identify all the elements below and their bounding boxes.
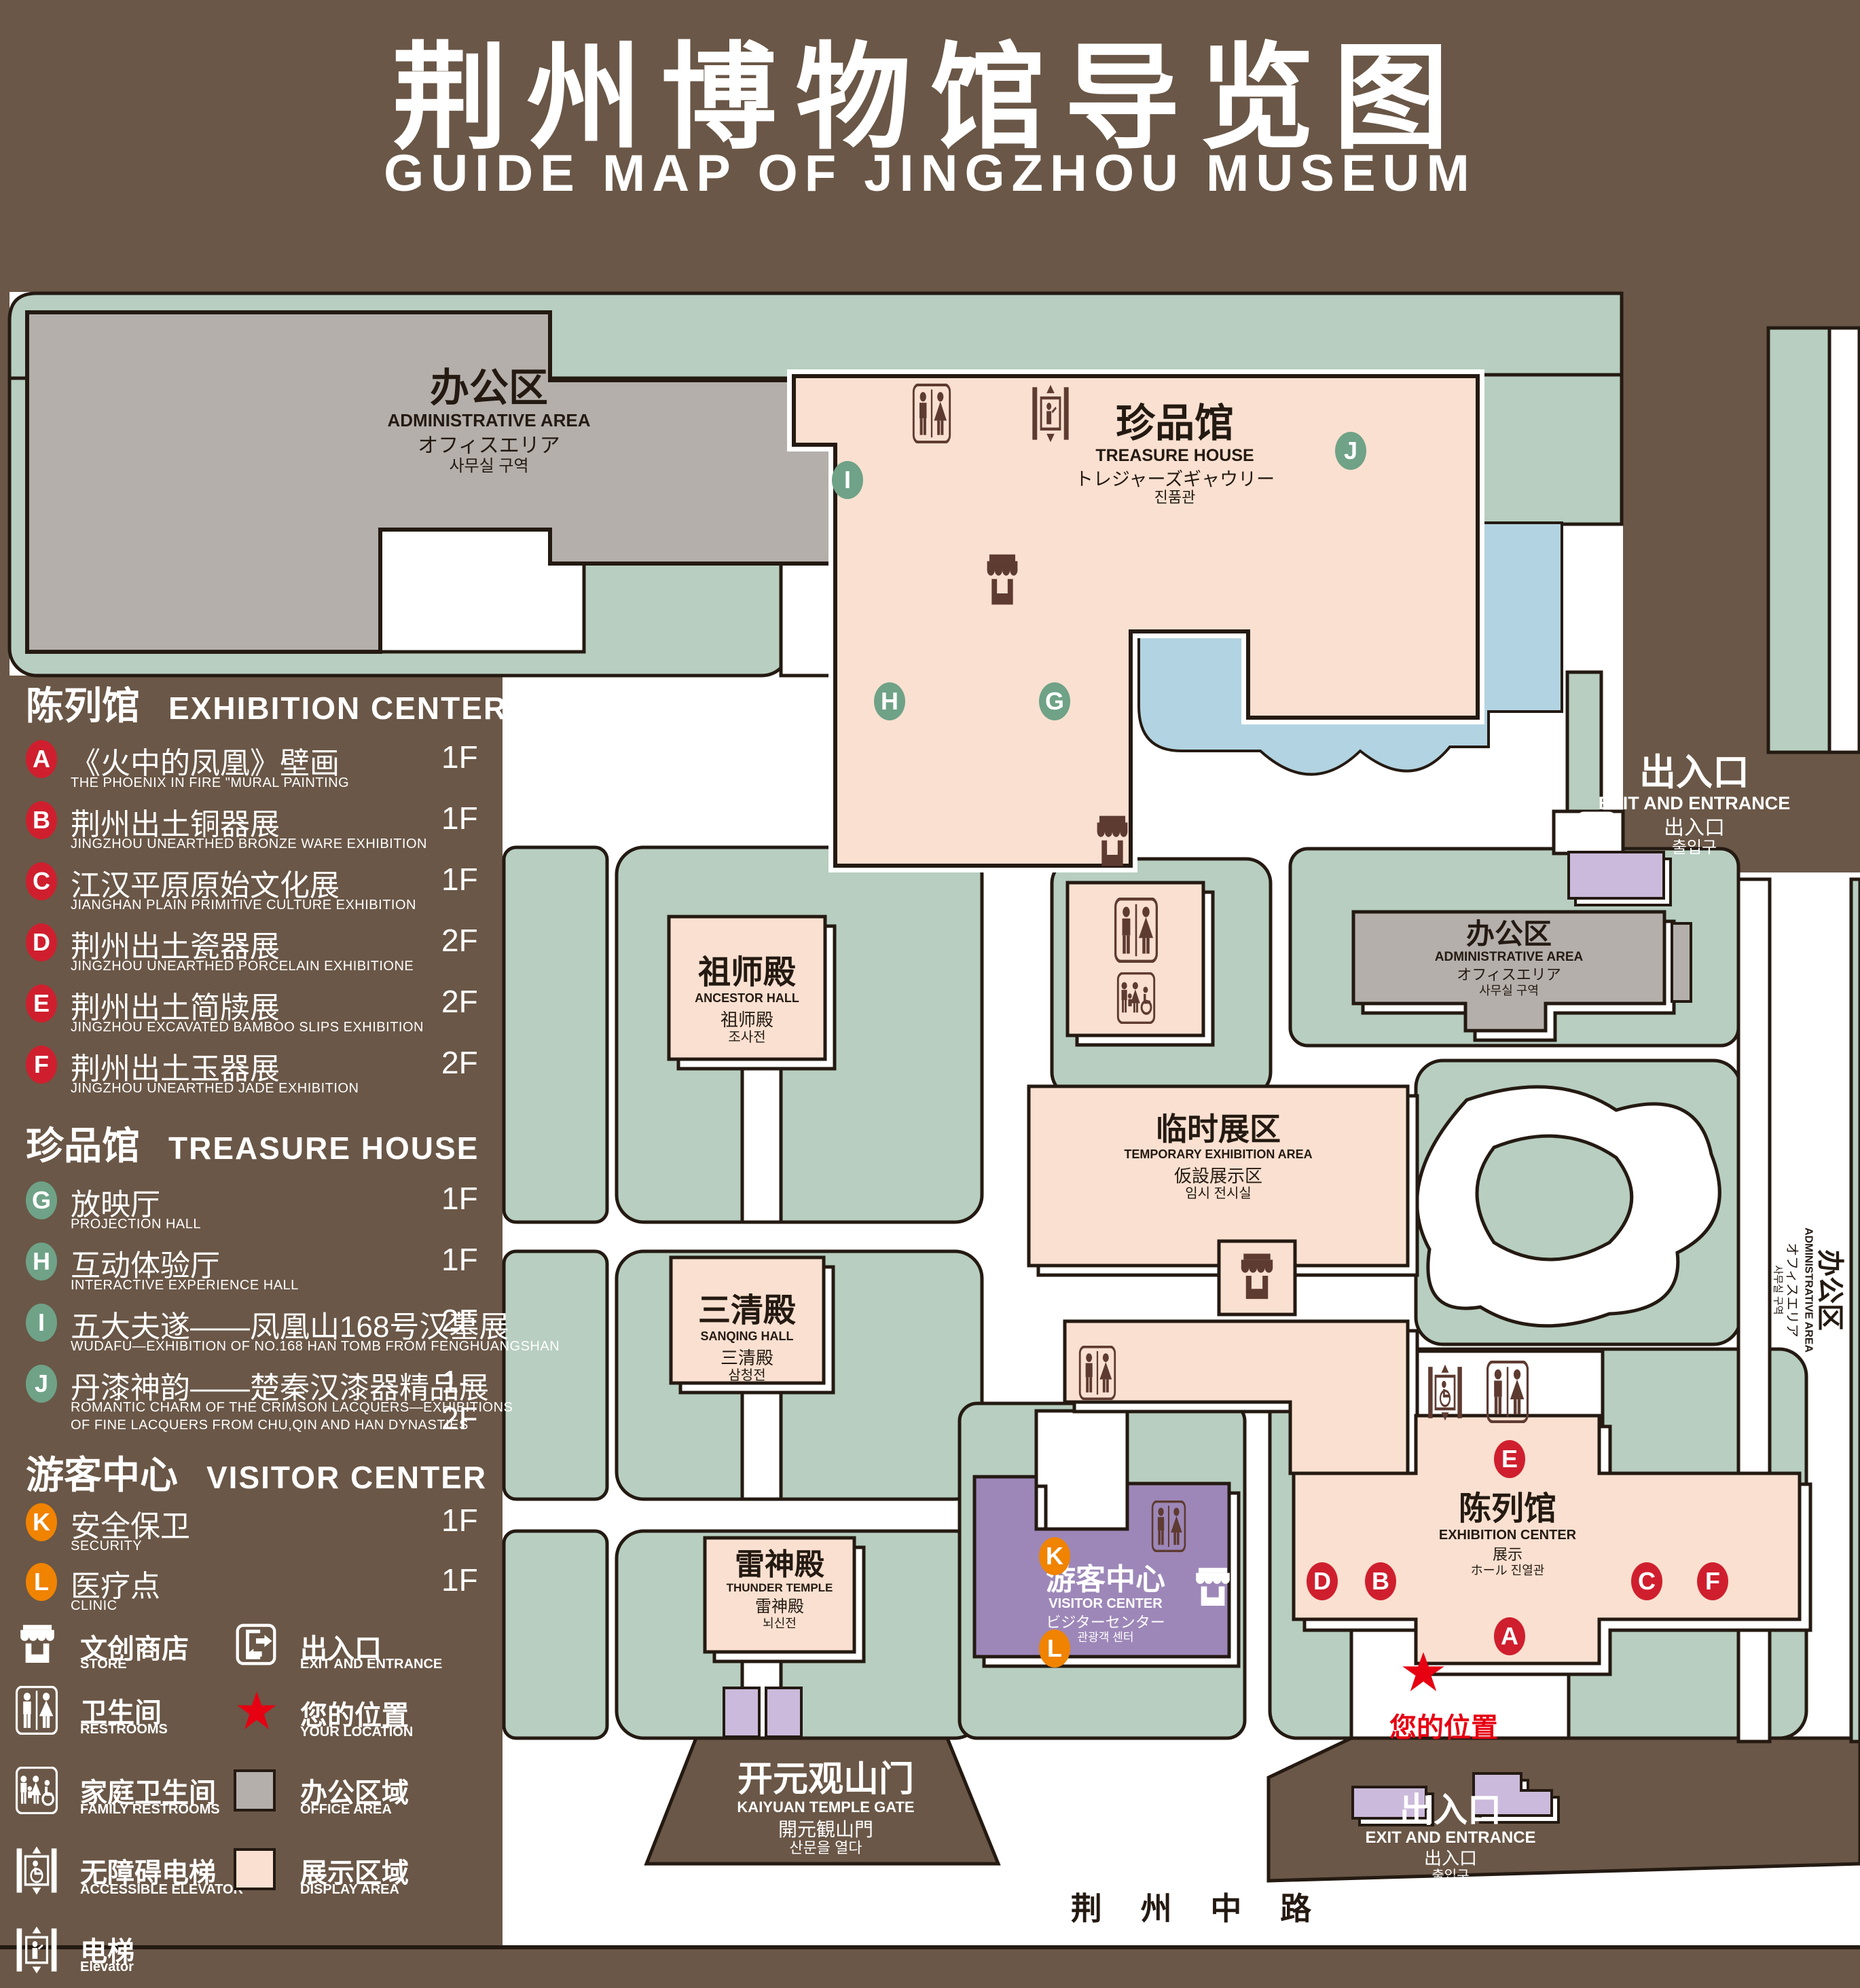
label-exhibition-center: 陈列馆 EXHIBITION CENTER 展示 ホール 진열관 — [1439, 1491, 1576, 1577]
badge-e: E — [26, 984, 57, 1023]
office-area-swatch — [234, 1769, 276, 1811]
label-cn: 临时展区 — [1124, 1112, 1312, 1147]
label-visitor-center: 游客中心 VISITOR CENTER ビジターセンター 관광객 센터 — [1046, 1563, 1165, 1644]
label-en: SANQING HALL — [698, 1329, 796, 1343]
restroom-icon — [1151, 1501, 1186, 1552]
label-cn: 开元观山门 — [737, 1760, 914, 1799]
label-cn: 珍品馆 — [1075, 402, 1275, 446]
restroom-icon — [15, 1686, 58, 1735]
path-top-right-strip — [1829, 328, 1859, 752]
legend-item-floor: 1-2F — [441, 1363, 501, 1437]
label-exit-bottom: 出入口 EXIT AND ENTRANCE 出入口 출입구 — [1365, 1791, 1535, 1883]
path-visitor-notch — [1036, 1411, 1127, 1533]
label-en: EXIT AND ENTRANCE — [1365, 1829, 1535, 1847]
legend-item-en2: OF FINE LACQUERS FROM CHU,QIN AND HAN DY… — [71, 1418, 469, 1433]
elevator-icon — [15, 1926, 58, 1974]
path-stem-2 — [742, 1383, 781, 1499]
label-admin-mid-right: 办公区 ADMINISTRATIVE AREA オフィスエリア 사무실 구역 — [1435, 918, 1584, 997]
lawn-left-2 — [504, 1251, 607, 1499]
legend-item-floor: 1F — [441, 1562, 478, 1598]
accessible-elevator-icon — [15, 1845, 58, 1896]
legend-header-visitor: 游客中心 VISITOR CENTER — [26, 1445, 487, 1500]
legend-header-cn: 陈列馆 — [26, 676, 140, 731]
label-jp: トレジャーズギャウリー — [1075, 469, 1275, 490]
restroom-icon — [1078, 1346, 1116, 1400]
label-kaiyuan-gate: 开元观山门 KAIYUAN TEMPLE GATE 開元観山門 산문을 열다 — [737, 1760, 914, 1857]
legend-header-treasure: 珍品馆 TREASURE HOUSE — [26, 1116, 479, 1171]
label-jp: 三清殿 — [698, 1348, 796, 1368]
your-location-star-icon — [236, 1691, 277, 1731]
legend-item-en: CLINIC — [71, 1598, 117, 1614]
legend-header-exhibition: 陈列馆 EXHIBITION CENTER — [26, 676, 507, 731]
lawn-finger — [1567, 672, 1601, 813]
map-marker-f: F — [1697, 1562, 1728, 1600]
legend-item-floor: 1F — [441, 861, 478, 898]
legend-item-d: D 荆州出土瓷器展 JINGZHOU UNEARTHED PORCELAIN E… — [26, 922, 501, 979]
label-en: THUNDER TEMPLE — [727, 1581, 833, 1594]
family-restroom-icon — [15, 1767, 58, 1814]
store-icon — [1093, 815, 1131, 870]
label-jp: 祖师殿 — [695, 1010, 799, 1030]
legend-store-en: STORE — [80, 1657, 127, 1672]
legend-location-en: YOUR LOCATION — [300, 1725, 413, 1740]
map-marker-d: D — [1307, 1562, 1338, 1600]
family-restroom-icon — [1116, 972, 1156, 1024]
restroom-icon — [1114, 898, 1159, 963]
legend-item-en: PROJECTION HALL — [71, 1217, 201, 1232]
store-icon — [1192, 1567, 1234, 1609]
label-cn: 办公区 — [1435, 918, 1584, 950]
badge-b: B — [26, 801, 57, 839]
label-exit-top-right: 出入口 EXIT AND ENTRANCE 出入口 출입구 — [1599, 752, 1791, 858]
legend-restrooms-en: RESTROOMS — [80, 1722, 168, 1737]
label-road: 荆 州 中 路 — [1071, 1892, 1326, 1927]
label-en: ADMINISTRATIVE AREA — [388, 411, 591, 430]
label-kr: 사무실 구역 — [1435, 984, 1584, 997]
label-cn: 陈列馆 — [1439, 1491, 1576, 1528]
legend-item-floor: 2F — [441, 1044, 478, 1081]
label-kr: 조사전 — [695, 1030, 799, 1045]
legend-family-en: FAMILY RESTROOMS — [80, 1802, 220, 1818]
legend-accessible-en: ACCESSIBLE ELEVATOR — [80, 1882, 243, 1898]
legend-item-floor: 1F — [441, 1502, 478, 1539]
map-marker-c: C — [1631, 1562, 1662, 1600]
legend-item-l: L 医疗点 CLINIC 1F — [26, 1562, 501, 1619]
label-treasure-house: 珍品馆 TREASURE HOUSE トレジャーズギャウリー 진품관 — [1075, 402, 1275, 507]
badge-a: A — [26, 740, 57, 778]
legend-header-cn: 游客中心 — [26, 1445, 178, 1500]
legend-item-h: H 互动体验厅 INTERACTIVE EXPERIENCE HALL 1F — [26, 1241, 501, 1298]
map-marker-i: I — [832, 461, 863, 499]
lawn-left-3 — [504, 1531, 607, 1738]
legend-item-j: J 丹漆神韵——楚秦汉漆器精品展 ROMANTIC CHARM OF THE C… — [26, 1363, 501, 1438]
label-en: TREASURE HOUSE — [1075, 446, 1275, 465]
label-en: EXIT AND ENTRANCE — [1599, 793, 1791, 813]
label-sanqing-hall: 三清殿 SANQING HALL 三清殿 삼청전 — [698, 1293, 796, 1383]
store-icon — [16, 1624, 58, 1666]
label-jp: 展示 — [1439, 1547, 1576, 1564]
legend-item-en: JINGZHOU UNEARTHED PORCELAIN EXHIBITIONE — [71, 959, 414, 974]
label-en: KAIYUAN TEMPLE GATE — [737, 1799, 914, 1816]
label-en: VISITOR CENTER — [1046, 1596, 1165, 1611]
label-en: EXHIBITION CENTER — [1439, 1528, 1576, 1543]
legend-office-en: OFFICE AREA — [300, 1802, 392, 1818]
map-marker-g: G — [1039, 682, 1070, 720]
badge-f: F — [26, 1046, 57, 1084]
map-marker-h: H — [874, 682, 905, 720]
label-jp: 開元観山門 — [737, 1819, 914, 1840]
legend-item-floor: 1F — [441, 1180, 478, 1217]
label-kr: 삼청전 — [698, 1368, 796, 1383]
label-jp: 出入口 — [1599, 817, 1791, 840]
label-jp: ビジターセンター — [1046, 1615, 1165, 1632]
legend-header-en: VISITOR CENTER — [206, 1459, 487, 1496]
badge-j: J — [26, 1365, 57, 1403]
legend-item-i: I 五大夫遂——凤凰山168号汉墓展 WUDAFU—EXHIBITION OF … — [26, 1302, 501, 1359]
badge-l: L — [26, 1563, 57, 1601]
map-marker-e: E — [1494, 1440, 1525, 1478]
gate-pillar-left — [724, 1688, 759, 1737]
legend-item-f: F 荆州出土玉器展 JINGZHOU UNEARTHED JADE EXHIBI… — [26, 1044, 501, 1101]
label-jp: オフィスエリア — [1783, 1228, 1799, 1352]
legend-item-en: SECURITY — [71, 1539, 142, 1554]
accessible-elevator-icon — [1427, 1363, 1463, 1422]
legend-item-e: E 荆州出土简牍展 JINGZHOU EXCAVATED BAMBOO SLIP… — [26, 983, 501, 1040]
label-jp: 出入口 — [1365, 1849, 1535, 1869]
label-en: ADMINISTRATIVE AREA — [1802, 1228, 1814, 1352]
legend-display-en: DISPLAY AREA — [300, 1882, 399, 1898]
legend-item-k: K 安全保卫 SECURITY 1F — [26, 1502, 501, 1559]
label-kr: 사무실 구역 — [388, 458, 591, 476]
garden-island — [1477, 1136, 1632, 1259]
legend-item-floor: 2F — [441, 983, 478, 1020]
legend-item-en: INTERACTIVE EXPERIENCE HALL — [71, 1278, 299, 1293]
lawn-left-1 — [504, 847, 607, 1222]
badge-c: C — [26, 862, 57, 900]
label-en: ANCESTOR HALL — [695, 991, 799, 1005]
legend-item-en: JINGZHOU UNEARTHED BRONZE WARE EXHIBITIO… — [71, 836, 427, 852]
label-kr: 산문을 열다 — [737, 1840, 914, 1857]
label-cn: 雷神殿 — [727, 1548, 833, 1581]
map-marker-l: L — [1039, 1630, 1070, 1668]
label-kr: 진품관 — [1075, 490, 1275, 507]
elevator-icon — [1031, 384, 1070, 443]
gate-pillar-right — [766, 1688, 801, 1737]
guide-map-page: 荆州博物馆导览图 GUIDE MAP OF JINGZHOU MUSEUM — [0, 0, 1860, 1988]
exit-icon — [235, 1623, 277, 1666]
map-marker-a: A — [1494, 1617, 1525, 1655]
legend-item-floor: 2F — [441, 1302, 478, 1339]
map-marker-j: J — [1335, 432, 1366, 470]
legend-item-en: JIANGHAN PLAIN PRIMITIVE CULTURE EXHIBIT… — [71, 898, 416, 913]
label-kr: 임시 전시실 — [1124, 1186, 1312, 1201]
legend-item-en: THE PHOENIX IN FIRE "MURAL PAINTING — [71, 775, 349, 791]
map-marker-k: K — [1039, 1537, 1070, 1575]
label-admin-top-left: 办公区 ADMINISTRATIVE AREA オフィスエリア 사무실 구역 — [388, 367, 591, 476]
lawn-right-of-treasure — [1480, 375, 1622, 524]
legend-item-floor: 1F — [441, 739, 478, 775]
badge-i: I — [26, 1304, 57, 1342]
label-thunder-temple: 雷神殿 THUNDER TEMPLE 雷神殿 뇌신전 — [727, 1548, 833, 1630]
label-jp: 雷神殿 — [727, 1598, 833, 1617]
label-en: ADMINISTRATIVE AREA — [1435, 950, 1584, 964]
map-marker-b: B — [1365, 1562, 1396, 1600]
label-kr: 뇌신전 — [727, 1617, 833, 1630]
label-jp: オフィスエリア — [388, 435, 591, 458]
label-temporary-exhibition: 临时展区 TEMPORARY EXHIBITION AREA 仮設展示区 임시 … — [1124, 1112, 1312, 1201]
store-icon — [1237, 1253, 1277, 1303]
badge-k: K — [26, 1503, 57, 1541]
legend-item-floor: 1F — [441, 800, 478, 836]
legend-item-floor: 1F — [441, 1241, 478, 1278]
display-area-swatch — [234, 1848, 276, 1890]
label-jp: 仮設展示区 — [1124, 1166, 1312, 1186]
badge-g: G — [26, 1181, 57, 1219]
legend-item-c: C 江汉平原原始文化展 JIANGHAN PLAIN PRIMITIVE CUL… — [26, 861, 501, 918]
legend-item-en: JINGZHOU UNEARTHED JADE EXHIBITION — [71, 1081, 359, 1097]
legend-item-b: B 荆州出土铜器展 JINGZHOU UNEARTHED BRONZE WARE… — [26, 800, 501, 857]
road-band-bottom — [0, 1947, 1860, 1988]
legend-item-en: JINGZHOU EXCAVATED BAMBOO SLIPS EXHIBITI… — [71, 1020, 424, 1035]
your-location-star-icon — [1402, 1651, 1445, 1693]
building-exit-tr-purple — [1569, 852, 1664, 898]
label-cn: 出入口 — [1599, 752, 1791, 793]
label-ancestor-hall: 祖师殿 ANCESTOR HALL 祖师殿 조사전 — [695, 955, 799, 1045]
path-stem-1 — [742, 1059, 781, 1222]
legend-item-a: A 《火中的凤凰》壁画 THE PHOENIX IN FIRE "MURAL P… — [26, 739, 501, 796]
legend-header-en: TREASURE HOUSE — [168, 1130, 479, 1166]
label-kr: 사무실 구역 — [1772, 1228, 1783, 1352]
badge-d: D — [26, 923, 57, 961]
label-cn: 办公区 — [388, 367, 591, 411]
legend-item-g: G 放映厅 PROJECTION HALL 1F — [26, 1180, 501, 1237]
label-cn: 出入口 — [1365, 1791, 1535, 1829]
legend-exit-en: EXIT AND ENTRANCE — [300, 1657, 442, 1672]
legend-header-en: EXHIBITION CENTER — [168, 690, 507, 726]
label-jp: オフィスエリア — [1435, 967, 1584, 984]
badge-h: H — [26, 1242, 57, 1281]
lawn-right-sliver — [1851, 879, 1860, 1742]
label-jp2: ホール 진열관 — [1439, 1564, 1576, 1577]
legend-elevator-en: Elevator — [80, 1959, 134, 1975]
legend-item-floor: 2F — [441, 922, 478, 959]
label-cn: 祖师殿 — [695, 955, 799, 991]
label-your-location: 您的位置 — [1389, 1706, 1498, 1745]
legend-header-cn: 珍品馆 — [26, 1116, 140, 1171]
store-icon — [983, 553, 1021, 609]
legend-item-en: WUDAFU—EXHIBITION OF NO.168 HAN TOMB FRO… — [71, 1339, 560, 1355]
label-kr: 출입구 — [1365, 1869, 1535, 1883]
label-cn: 办公区 — [1814, 1228, 1845, 1352]
label-cn: 三清殿 — [698, 1293, 796, 1329]
lawn-top-right-strip — [1768, 328, 1829, 752]
label-admin-right-strip: 办公区 ADMINISTRATIVE AREA オフィスエリア 사무실 구역 — [1772, 1228, 1846, 1352]
restroom-icon — [1486, 1361, 1529, 1423]
restroom-icon — [912, 384, 951, 443]
label-kr: 출입구 — [1599, 839, 1791, 858]
label-en: TEMPORARY EXHIBITION AREA — [1124, 1147, 1312, 1161]
